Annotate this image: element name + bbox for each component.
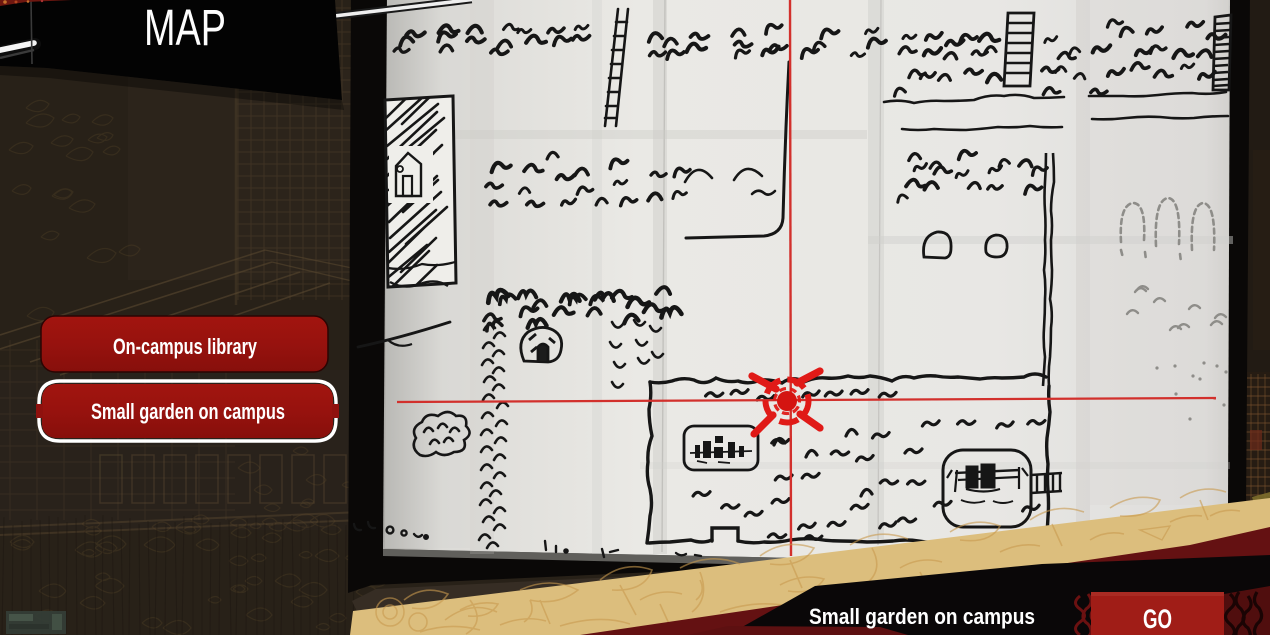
svg-text:Small garden on campus: Small garden on campus — [809, 604, 1035, 629]
svg-text:Small garden on campus: Small garden on campus — [91, 399, 285, 424]
svg-text:GO: GO — [1143, 604, 1172, 634]
svg-text:On-campus library: On-campus library — [113, 334, 258, 359]
svg-text:MAP: MAP — [144, 0, 226, 56]
